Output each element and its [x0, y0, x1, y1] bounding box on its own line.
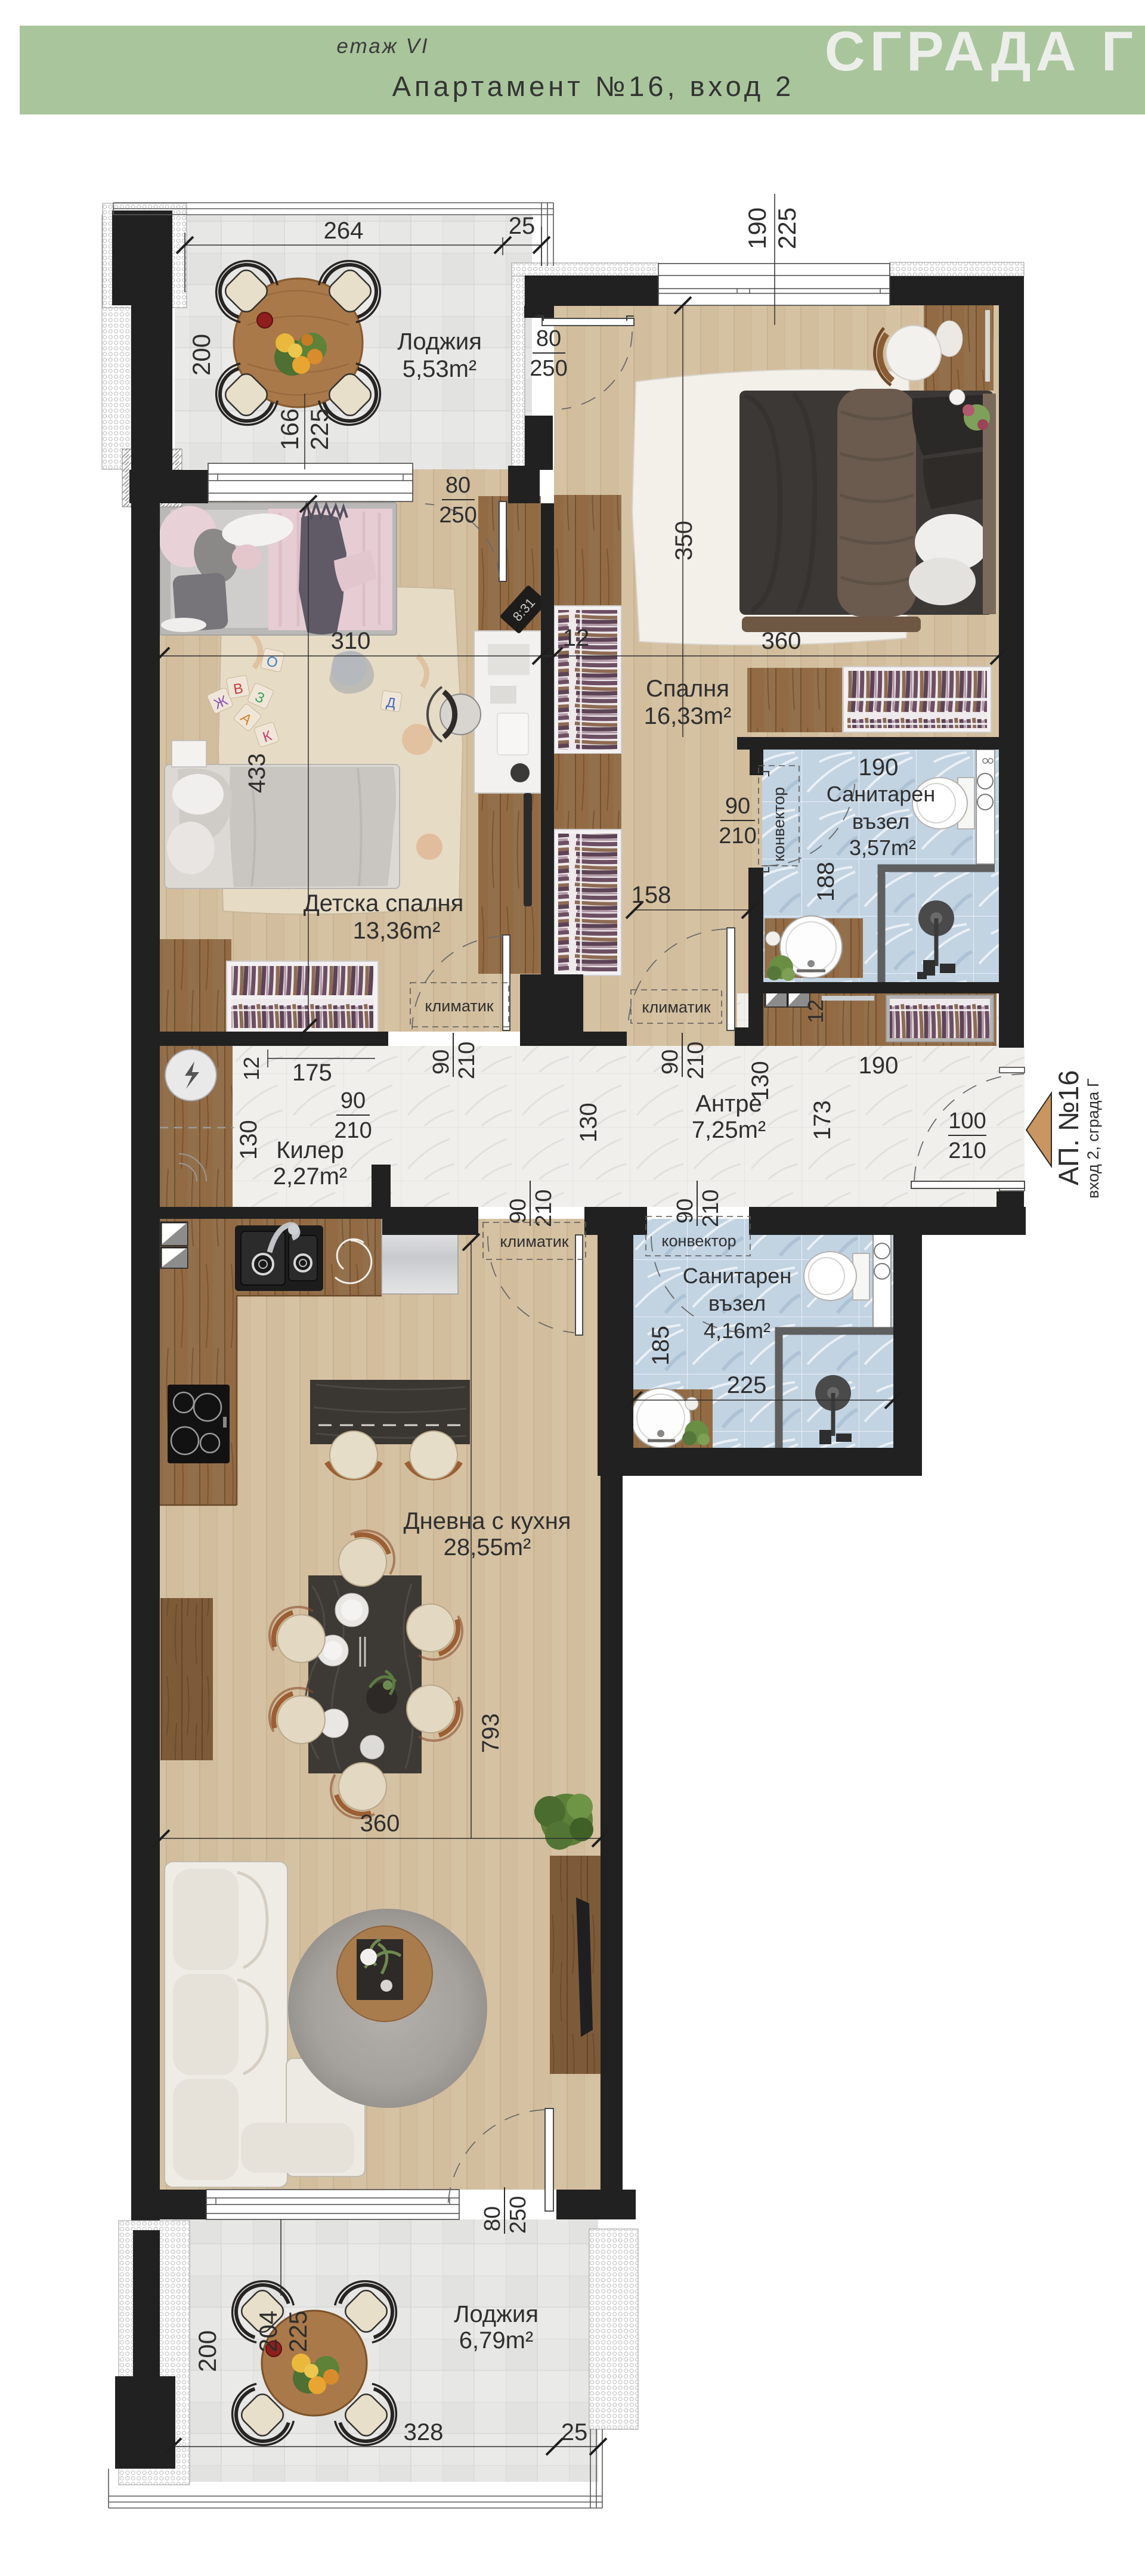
svg-text:25: 25 — [509, 213, 536, 239]
svg-text:4,16m²: 4,16m² — [704, 1318, 770, 1343]
svg-text:Килер: Килер — [276, 1137, 343, 1163]
svg-text:13,36m²: 13,36m² — [353, 918, 441, 944]
svg-text:климатик: климатик — [500, 1233, 568, 1250]
svg-text:225: 225 — [773, 208, 801, 249]
svg-text:Апартамент №16, вход 2: Апартамент №16, вход 2 — [392, 70, 795, 102]
svg-text:250: 250 — [439, 503, 476, 528]
svg-text:АП. №16: АП. №16 — [1053, 1070, 1084, 1185]
svg-text:185: 185 — [648, 1326, 674, 1366]
svg-text:25: 25 — [561, 2419, 588, 2445]
svg-text:12: 12 — [239, 1057, 264, 1080]
svg-text:климатик: климатик — [642, 998, 710, 1016]
svg-text:Антре: Антре — [695, 1091, 762, 1117]
svg-text:158: 158 — [632, 882, 671, 908]
svg-text:конвектор: конвектор — [661, 1232, 736, 1250]
svg-text:Санитарен: Санитарен — [683, 1264, 791, 1288]
svg-text:Лоджия: Лоджия — [397, 329, 482, 355]
svg-text:възел: възел — [708, 1291, 766, 1315]
svg-text:16,33m²: 16,33m² — [644, 703, 732, 729]
svg-text:350: 350 — [671, 521, 697, 561]
svg-text:328: 328 — [404, 2419, 444, 2445]
svg-text:190: 190 — [859, 754, 899, 781]
svg-text:90: 90 — [725, 794, 750, 819]
svg-text:190: 190 — [859, 1052, 899, 1079]
svg-text:Спалня: Спалня — [646, 676, 729, 702]
svg-text:7,25m²: 7,25m² — [692, 1117, 766, 1143]
svg-text:Дневна с кухня: Дневна с кухня — [404, 1508, 571, 1534]
svg-text:225: 225 — [727, 1372, 767, 1398]
svg-text:климатик: климатик — [425, 997, 493, 1015]
svg-text:200: 200 — [193, 2330, 221, 2372]
svg-text:90: 90 — [429, 1049, 454, 1075]
svg-text:250: 250 — [506, 2196, 531, 2234]
svg-text:793: 793 — [478, 1713, 504, 1753]
svg-text:166: 166 — [276, 408, 304, 450]
svg-text:80: 80 — [480, 2206, 505, 2231]
svg-text:225: 225 — [305, 408, 333, 450]
svg-text:2,27m²: 2,27m² — [273, 1163, 348, 1190]
svg-text:12: 12 — [563, 625, 590, 651]
svg-text:200: 200 — [187, 334, 215, 376]
svg-text:възел: възел — [852, 809, 909, 834]
svg-text:264: 264 — [324, 218, 364, 244]
svg-text:Детска спалня: Детска спалня — [304, 890, 464, 917]
svg-text:225: 225 — [284, 2311, 312, 2352]
svg-text:310: 310 — [331, 628, 371, 654]
svg-text:188: 188 — [813, 862, 839, 902]
svg-text:вход 2, сграда Г: вход 2, сграда Г — [1084, 1078, 1102, 1199]
svg-text:80: 80 — [445, 473, 471, 498]
svg-text:90: 90 — [506, 1199, 531, 1224]
svg-text:12: 12 — [803, 999, 828, 1023]
svg-text:210: 210 — [454, 1042, 479, 1079]
svg-text:210: 210 — [531, 1190, 556, 1227]
svg-text:Санитарен: Санитарен — [827, 782, 935, 806]
svg-text:130: 130 — [575, 1103, 602, 1143]
svg-text:100: 100 — [948, 1109, 986, 1134]
svg-text:210: 210 — [683, 1042, 708, 1079]
svg-text:360: 360 — [762, 628, 801, 654]
svg-text:80: 80 — [536, 326, 561, 351]
svg-text:175: 175 — [292, 1060, 332, 1086]
svg-text:28,55m²: 28,55m² — [444, 1534, 531, 1561]
svg-text:5,53m²: 5,53m² — [403, 356, 477, 382]
svg-text:210: 210 — [719, 823, 756, 849]
svg-text:210: 210 — [948, 1138, 986, 1163]
svg-text:130: 130 — [236, 1120, 262, 1160]
svg-text:90: 90 — [658, 1049, 683, 1075]
svg-text:етаж VI: етаж VI — [336, 35, 429, 58]
svg-text:6,79m²: 6,79m² — [459, 2327, 534, 2354]
svg-text:433: 433 — [244, 753, 270, 793]
svg-text:210: 210 — [698, 1190, 723, 1227]
svg-text:173: 173 — [809, 1100, 835, 1140]
svg-text:360: 360 — [360, 1810, 400, 1837]
svg-text:3,57m²: 3,57m² — [849, 835, 916, 860]
svg-text:90: 90 — [673, 1199, 698, 1224]
svg-text:204: 204 — [254, 2311, 282, 2352]
svg-text:Лоджия: Лоджия — [454, 2301, 539, 2327]
svg-text:конвектор: конвектор — [770, 787, 788, 862]
svg-text:190: 190 — [743, 208, 771, 249]
svg-text:250: 250 — [530, 356, 567, 381]
svg-text:СГРАДА Г: СГРАДА Г — [825, 20, 1138, 82]
svg-text:90: 90 — [341, 1088, 366, 1113]
